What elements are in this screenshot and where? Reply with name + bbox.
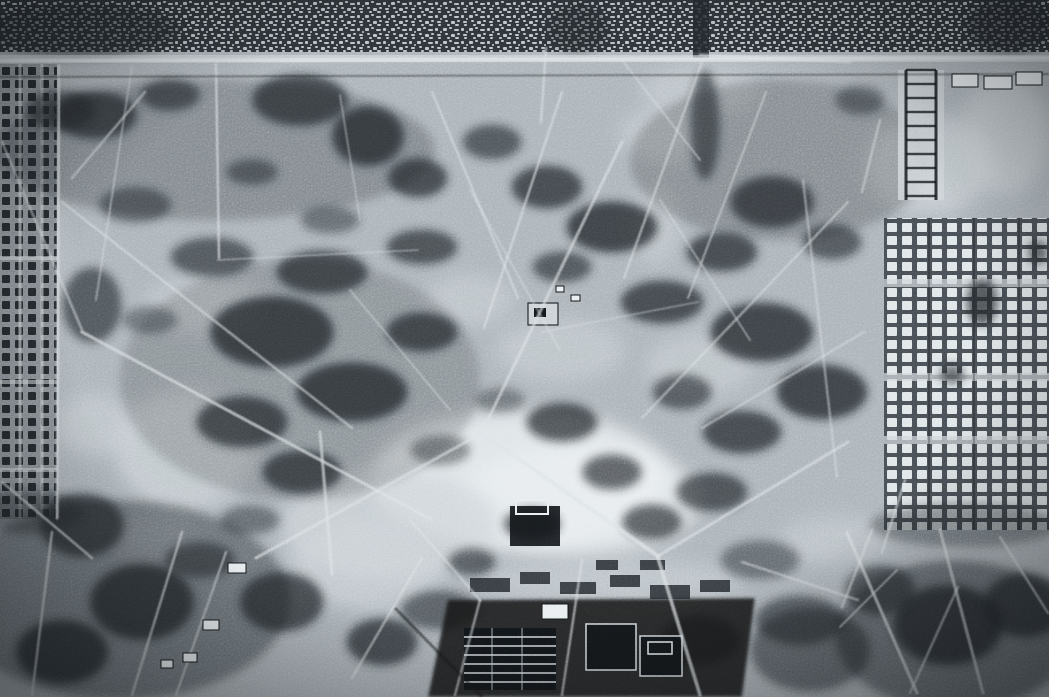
aerial-photo-canvas	[0, 0, 1049, 697]
aerial-photo	[0, 0, 1049, 697]
vignette-overlay	[0, 0, 1049, 697]
